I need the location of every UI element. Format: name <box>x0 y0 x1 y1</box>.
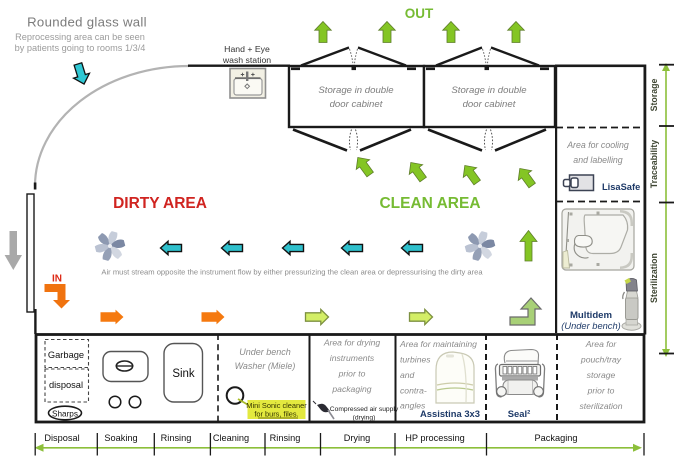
svg-text:pouch/tray: pouch/tray <box>580 355 622 365</box>
svg-text:Storage: Storage <box>649 79 659 112</box>
svg-text:storage: storage <box>587 370 616 380</box>
svg-text:prior to: prior to <box>338 369 366 379</box>
svg-text:(drying): (drying) <box>353 415 376 422</box>
svg-text:for burs, files.: for burs, files. <box>254 410 298 419</box>
svg-text:Area for cooling: Area for cooling <box>566 140 629 150</box>
svg-text:instruments: instruments <box>330 353 375 363</box>
svg-text:Drying: Drying <box>344 433 371 443</box>
svg-text:Rinsing: Rinsing <box>270 433 301 443</box>
svg-text:prior to: prior to <box>587 386 615 396</box>
svg-text:Garbage: Garbage <box>48 350 84 360</box>
svg-text:Sterilization: Sterilization <box>649 253 659 303</box>
svg-text:Storage in double: Storage in double <box>451 85 526 96</box>
svg-text:Storage in double: Storage in double <box>318 85 393 96</box>
svg-text:Packaging: Packaging <box>535 433 578 443</box>
svg-text:Multidem: Multidem <box>570 310 612 321</box>
svg-text:disposal: disposal <box>49 380 83 390</box>
svg-text:Seal²: Seal² <box>508 408 530 419</box>
svg-text:Sink: Sink <box>172 368 195 380</box>
svg-text:Air must stream opposite the i: Air must stream opposite the instrument … <box>101 268 483 277</box>
svg-text:turbines: turbines <box>400 355 431 365</box>
svg-text:by patients going to rooms 1/3: by patients going to rooms 1/3/4 <box>15 43 146 53</box>
svg-text:Compressed air supply: Compressed air supply <box>330 406 399 413</box>
svg-text:Disposal: Disposal <box>44 433 79 443</box>
svg-text:Area for maintaining: Area for maintaining <box>399 339 477 349</box>
svg-text:sterilization: sterilization <box>580 401 623 411</box>
svg-text:OUT: OUT <box>405 6 434 21</box>
svg-text:and labelling: and labelling <box>573 155 623 165</box>
svg-text:contra-: contra- <box>400 386 427 396</box>
svg-text:Sharps: Sharps <box>52 410 78 419</box>
svg-text:door cabinet: door cabinet <box>463 99 516 110</box>
svg-text:Area for: Area for <box>585 339 618 349</box>
svg-text:Rounded glass wall: Rounded glass wall <box>27 15 147 30</box>
svg-text:and: and <box>400 370 415 380</box>
svg-text:Rinsing: Rinsing <box>161 433 192 443</box>
svg-text:Under bench: Under bench <box>239 347 291 357</box>
svg-text:CLEAN AREA: CLEAN AREA <box>379 195 480 212</box>
svg-text:(Under bench): (Under bench) <box>561 321 620 331</box>
svg-text:packaging: packaging <box>331 384 371 394</box>
svg-text:Reprocessing area can be seen: Reprocessing area can be seen <box>15 32 145 42</box>
svg-text:Cleaning: Cleaning <box>213 433 249 443</box>
svg-text:Washer (Miele): Washer (Miele) <box>235 361 296 371</box>
svg-text:Area for drying: Area for drying <box>323 338 381 348</box>
svg-text:LisaSafe: LisaSafe <box>602 182 640 192</box>
svg-text:Soaking: Soaking <box>104 433 137 443</box>
svg-text:Hand + Eye: Hand + Eye <box>224 44 270 54</box>
svg-text:DIRTY AREA: DIRTY AREA <box>113 195 207 212</box>
svg-text:door cabinet: door cabinet <box>330 99 383 110</box>
svg-text:Traceability: Traceability <box>649 140 659 189</box>
svg-text:HP processing: HP processing <box>405 433 465 443</box>
svg-text:Assistina 3x3: Assistina 3x3 <box>420 408 480 419</box>
svg-text:IN: IN <box>52 274 62 285</box>
svg-text:wash station: wash station <box>222 55 271 65</box>
